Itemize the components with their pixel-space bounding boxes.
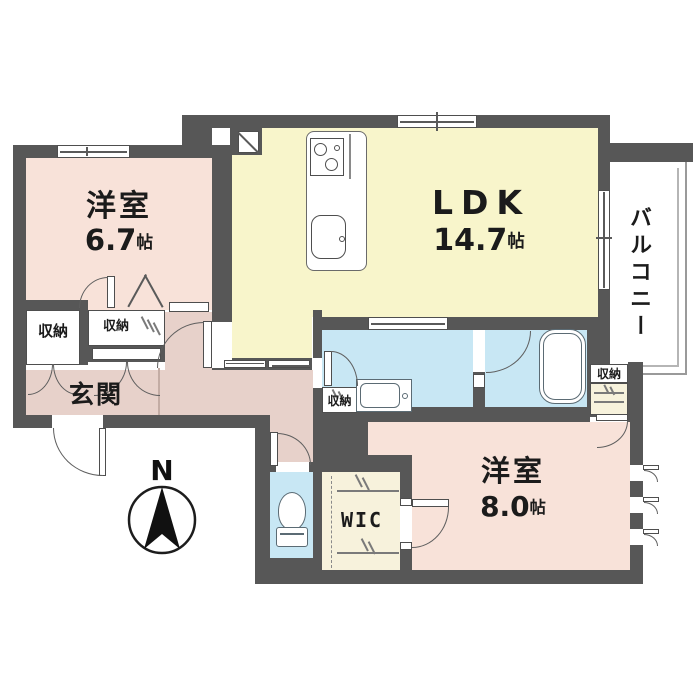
wic-door-hinge-bottom [400,542,412,550]
wall-below-toilet [270,558,313,574]
kitchen-burner-small [334,145,340,151]
kitchen-stove [310,138,344,176]
room-west1-area-value: 6.7 [85,223,136,257]
toilet-tank-line [280,533,304,535]
room-west2-nook [368,422,412,455]
window-west1-tick [86,147,88,156]
window-ldk-tick [436,112,438,131]
wic-door-hinge-top [400,498,412,506]
hall-ldk-door-leaf [203,321,212,368]
window-balcony-tick [596,237,612,239]
wic-door-leaf [412,499,449,507]
window-balcony-line [603,192,605,288]
closet-bedroom-label: 収納 [590,365,628,382]
balcony-outer-edge-right [685,162,687,375]
wall-lower-left [255,415,270,584]
toilet-tank [276,527,308,547]
sliding-door-ldk-left-line [226,363,264,365]
closet-washroom-label: 収納 [322,389,357,411]
wall-left-closet-right [80,310,88,365]
closet-bedroom-shelf-2 [594,401,624,403]
wall-west2-right [630,393,643,584]
opening-west1-door [169,302,209,312]
wic-label: WIC [330,505,394,535]
room-ldk-area: 14.7帖 [406,223,552,257]
room-ldk-area-value: 14.7 [433,223,507,258]
sliding-door-ldk-right-line [272,365,310,367]
bathtub-inner [543,333,582,400]
compass-icon: N [120,450,210,562]
balcony-label: バルコニー [618,188,658,358]
casement-gap-2 [630,497,643,513]
bath-door-step [473,374,485,388]
casement-arc-3 [644,534,658,546]
kitchen-sink-drain [339,236,345,242]
room-ldk-area-unit: 帖 [507,228,524,253]
room-west1-area: 6.7帖 [58,224,180,256]
opening-bath-door [473,330,485,372]
casement-gap-3 [630,529,643,545]
vanity-drain [402,393,408,399]
closet-hall-label: 収納 [92,314,140,334]
wall-bottom [255,570,643,584]
room-west2-area-value: 8.0 [480,490,530,523]
vanity-basin [360,383,400,408]
entrance-label: 玄関 [46,377,146,409]
kitchen-counter-edge [349,134,351,179]
floor-plan: 洋室 6.7帖 LDK 14.7帖 洋室 8.0帖 バルコニー 玄関 WIC 収… [0,0,700,700]
wall-toilet-wic-left [313,422,322,572]
wall-top-ldk [182,115,610,128]
opening-washroom-left [313,358,322,388]
compass-north-label: N [150,454,173,487]
toilet-bowl [278,492,306,530]
sliding-door-ldk-right [268,360,310,368]
kitchen-burner-1 [314,143,327,156]
window-washroom-line [371,323,445,325]
wall-balcony-top [610,143,693,162]
window-west1-line [60,151,127,153]
closet-bedroom-inner [590,383,628,415]
entrance-door-arc [53,428,103,476]
wic-rod-bottom [337,552,399,554]
sliding-door-ldk-left [224,360,266,368]
balcony-inner-edge-right [677,168,679,367]
wall-bottom-entrance [13,415,255,428]
room-west2-area: 8.0帖 [452,490,574,522]
opening-hall-closet [92,348,161,360]
west1-door-leaf [107,276,115,308]
closet-bedroom-door-leaf [596,414,628,421]
opening-entrance-door [52,415,103,428]
opening-wic-door [400,506,412,542]
wall-between-rooms [212,145,232,312]
wall-left-outer [13,145,26,428]
casement-gap-1 [630,465,643,481]
wall-nook-fill [322,422,368,455]
room-west2-label: 洋室 [452,452,574,486]
room-ldk-floor-ext [232,317,312,358]
room-west1-label: 洋室 [58,186,180,220]
closet-left-label: 収納 [26,318,80,342]
room-west1-area-unit: 帖 [136,228,153,253]
wall-wic-top [322,455,412,472]
kitchen-burner-2 [325,158,338,171]
room-ldk-label: LDK [408,184,554,220]
room-west2-area-unit: 帖 [530,494,546,518]
casement-arc-2 [644,502,658,514]
casement-arc-1 [644,470,658,482]
